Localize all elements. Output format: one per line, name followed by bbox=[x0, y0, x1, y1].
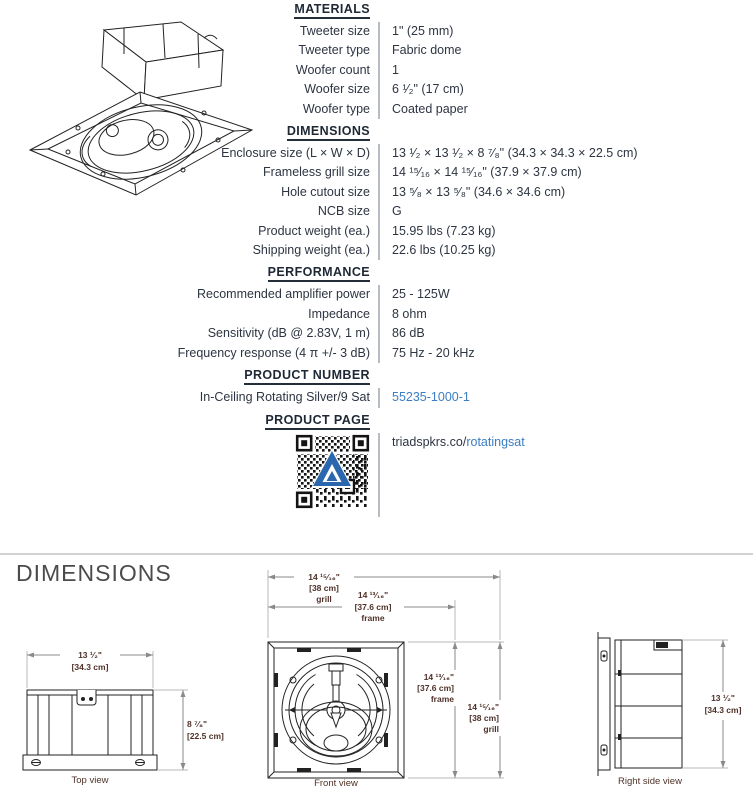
front-frame-height-in: 14 ¹³⁄₁₆" bbox=[424, 672, 454, 682]
top-view-depth-dim: 8 ⁷⁄₈" [22.5 cm] bbox=[153, 690, 224, 770]
spec-label: Frequency response (4 π +/- 3 dB) bbox=[0, 344, 378, 363]
front-grill-width-cm: [38 cm] bbox=[309, 583, 339, 593]
section-product-page: PRODUCT PAGE bbox=[0, 413, 680, 517]
table-row: Shipping weight (ea.)22.6 lbs (10.25 kg) bbox=[0, 241, 680, 260]
right-view-height-dim: 13 ¹⁄₂" [34.3 cm] bbox=[682, 640, 742, 768]
right-side-view-caption: Right side view bbox=[618, 776, 682, 787]
spec-label: Woofer size bbox=[0, 80, 378, 99]
table-row: Woofer size6 ¹⁄₂" (17 cm) bbox=[0, 80, 680, 99]
qr-code-icon bbox=[295, 434, 370, 509]
spec-label: Tweeter type bbox=[0, 41, 378, 60]
front-view-frame-width-dim: 14 ¹³⁄₁₆" [37.6 cm] frame bbox=[268, 590, 455, 640]
front-grill-height-cm: [38 cm] bbox=[469, 713, 499, 723]
spec-label: Enclosure size (L × W × D) bbox=[0, 144, 378, 163]
spec-label: Shipping weight (ea.) bbox=[0, 241, 378, 260]
top-view-body bbox=[23, 690, 157, 770]
table-row: Hole cutout size13 ⁵⁄₈ × 13 ⁵⁄₈" (34.6 ×… bbox=[0, 183, 680, 202]
front-frame-height-cm: [37.6 cm] bbox=[417, 683, 454, 693]
dimensions-section-title: DIMENSIONS bbox=[16, 560, 172, 587]
table-row: triadspkrs.co/rotatingsat bbox=[0, 433, 680, 517]
front-frame-width-in: 14 ¹³⁄₁₆" bbox=[358, 590, 388, 600]
spec-label: Product weight (ea.) bbox=[0, 222, 378, 241]
front-view-caption: Front view bbox=[314, 778, 358, 787]
top-view-depth-in: 8 ⁷⁄₈" bbox=[187, 719, 207, 729]
section-dimensions: DIMENSIONS Enclosure size (L × W × D)13 … bbox=[0, 124, 680, 260]
top-view-depth-cm: [22.5 cm] bbox=[187, 731, 224, 741]
spec-value: 86 dB bbox=[378, 324, 680, 343]
front-grill-width-label: grill bbox=[316, 594, 332, 604]
front-view-body bbox=[268, 642, 404, 778]
spec-value: 75 Hz - 20 kHz bbox=[378, 344, 680, 363]
table-row: Frequency response (4 π +/- 3 dB)75 Hz -… bbox=[0, 344, 680, 363]
spec-value: 1" (25 mm) bbox=[378, 22, 680, 41]
spec-label: Woofer count bbox=[0, 61, 378, 80]
table-row: Woofer typeCoated paper bbox=[0, 100, 680, 119]
spec-value: 13 ¹⁄₂ × 13 ¹⁄₂ × 8 ⁷⁄₈" (34.3 × 34.3 × … bbox=[378, 144, 680, 163]
table-row: Woofer count1 bbox=[0, 61, 680, 80]
spec-value: 22.6 lbs (10.25 kg) bbox=[378, 241, 680, 260]
front-frame-width-cm: [37.6 cm] bbox=[355, 602, 392, 612]
front-frame-height-label: frame bbox=[431, 694, 454, 704]
spec-value: Fabric dome bbox=[378, 41, 680, 60]
table-row: Recommended amplifier power25 - 125W bbox=[0, 285, 680, 304]
table-row: In-Ceiling Rotating Silver/9 Sat 55235-1… bbox=[0, 388, 680, 407]
spec-value: 6 ¹⁄₂" (17 cm) bbox=[378, 80, 680, 99]
right-side-view-drawing: 13 ¹⁄₂" [34.3 cm] Right side view bbox=[580, 628, 753, 787]
dimensions-heading: DIMENSIONS bbox=[287, 124, 370, 141]
table-row: Sensitivity (dB @ 2.83V, 1 m)86 dB bbox=[0, 324, 680, 343]
spec-label: Frameless grill size bbox=[0, 163, 378, 182]
top-view-width-dim: 13 ¹⁄₂" [34.3 cm] bbox=[27, 650, 153, 688]
product-page-url-prefix: triadspkrs.co/ bbox=[392, 435, 466, 449]
top-view-caption: Top view bbox=[72, 775, 109, 786]
spec-label: NCB size bbox=[0, 202, 378, 221]
spec-label: Impedance bbox=[0, 305, 378, 324]
spec-label: Recommended amplifier power bbox=[0, 285, 378, 304]
section-product-number: PRODUCT NUMBER In-Ceiling Rotating Silve… bbox=[0, 368, 680, 407]
right-view-height-cm: [34.3 cm] bbox=[705, 705, 742, 715]
table-row: NCB sizeG bbox=[0, 202, 680, 221]
spec-value: 25 - 125W bbox=[378, 285, 680, 304]
table-row: Enclosure size (L × W × D)13 ¹⁄₂ × 13 ¹⁄… bbox=[0, 144, 680, 163]
table-row: Tweeter typeFabric dome bbox=[0, 41, 680, 60]
table-row: Product weight (ea.)15.95 lbs (7.23 kg) bbox=[0, 222, 680, 241]
spec-value: 14 ¹⁵⁄₁₆ × 14 ¹⁵⁄₁₆" (37.9 × 37.9 cm) bbox=[378, 163, 680, 182]
front-view-drawing: 14 ¹⁵⁄₁₆" [38 cm] grill 14 ¹³⁄₁₆" [37.6 … bbox=[258, 560, 510, 787]
performance-heading: PERFORMANCE bbox=[268, 265, 370, 282]
section-divider bbox=[0, 553, 753, 555]
front-grill-height-in: 14 ¹⁵⁄₁₆" bbox=[468, 702, 499, 712]
product-number-link[interactable]: 55235-1000-1 bbox=[392, 390, 470, 404]
right-view-height-in: 13 ¹⁄₂" bbox=[711, 693, 735, 703]
spec-sheet: MATERIALS Tweeter size1" (25 mm) Tweeter… bbox=[0, 0, 753, 787]
top-view-width-cm: [34.3 cm] bbox=[72, 662, 109, 672]
spec-label: Tweeter size bbox=[0, 22, 378, 41]
section-performance: PERFORMANCE Recommended amplifier power2… bbox=[0, 265, 680, 363]
product-page-heading: PRODUCT PAGE bbox=[265, 413, 370, 430]
spec-value: 15.95 lbs (7.23 kg) bbox=[378, 222, 680, 241]
right-view-body bbox=[598, 632, 682, 776]
materials-heading: MATERIALS bbox=[294, 2, 370, 19]
section-materials: MATERIALS Tweeter size1" (25 mm) Tweeter… bbox=[0, 2, 680, 119]
table-row: Tweeter size1" (25 mm) bbox=[0, 22, 680, 41]
spec-value: G bbox=[378, 202, 680, 221]
product-page-link[interactable]: rotatingsat bbox=[466, 435, 524, 449]
top-view-drawing: 13 ¹⁄₂" [34.3 cm] 8 ⁷ bbox=[20, 645, 230, 787]
top-view-width-in: 13 ¹⁄₂" bbox=[78, 650, 102, 660]
spec-label: Sensitivity (dB @ 2.83V, 1 m) bbox=[0, 324, 378, 343]
spec-label: Hole cutout size bbox=[0, 183, 378, 202]
table-row: Impedance8 ohm bbox=[0, 305, 680, 324]
spec-value: 13 ⁵⁄₈ × 13 ⁵⁄₈" (34.6 × 34.6 cm) bbox=[378, 183, 680, 202]
front-view-grill-height-dim: 14 ¹⁵⁄₁₆" [38 cm] grill bbox=[468, 642, 503, 778]
product-name: In-Ceiling Rotating Silver/9 Sat bbox=[0, 388, 378, 407]
spec-value: Coated paper bbox=[378, 100, 680, 119]
front-grill-height-label: grill bbox=[483, 724, 499, 734]
spec-table: MATERIALS Tweeter size1" (25 mm) Tweeter… bbox=[0, 2, 680, 517]
product-number-heading: PRODUCT NUMBER bbox=[244, 368, 370, 385]
spec-value: 1 bbox=[378, 61, 680, 80]
front-frame-width-label: frame bbox=[361, 613, 384, 623]
spec-value: 8 ohm bbox=[378, 305, 680, 324]
front-grill-width-in: 14 ¹⁵⁄₁₆" bbox=[308, 572, 339, 582]
table-row: Frameless grill size14 ¹⁵⁄₁₆ × 14 ¹⁵⁄₁₆"… bbox=[0, 163, 680, 182]
spec-label: Woofer type bbox=[0, 100, 378, 119]
